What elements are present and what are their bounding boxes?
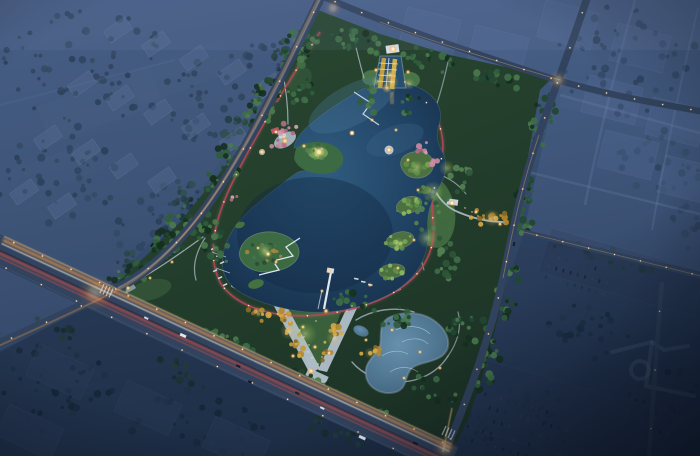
aerial-park-rendering (0, 0, 700, 456)
top-atmosphere (0, 0, 700, 50)
corner-shadow (0, 0, 700, 456)
